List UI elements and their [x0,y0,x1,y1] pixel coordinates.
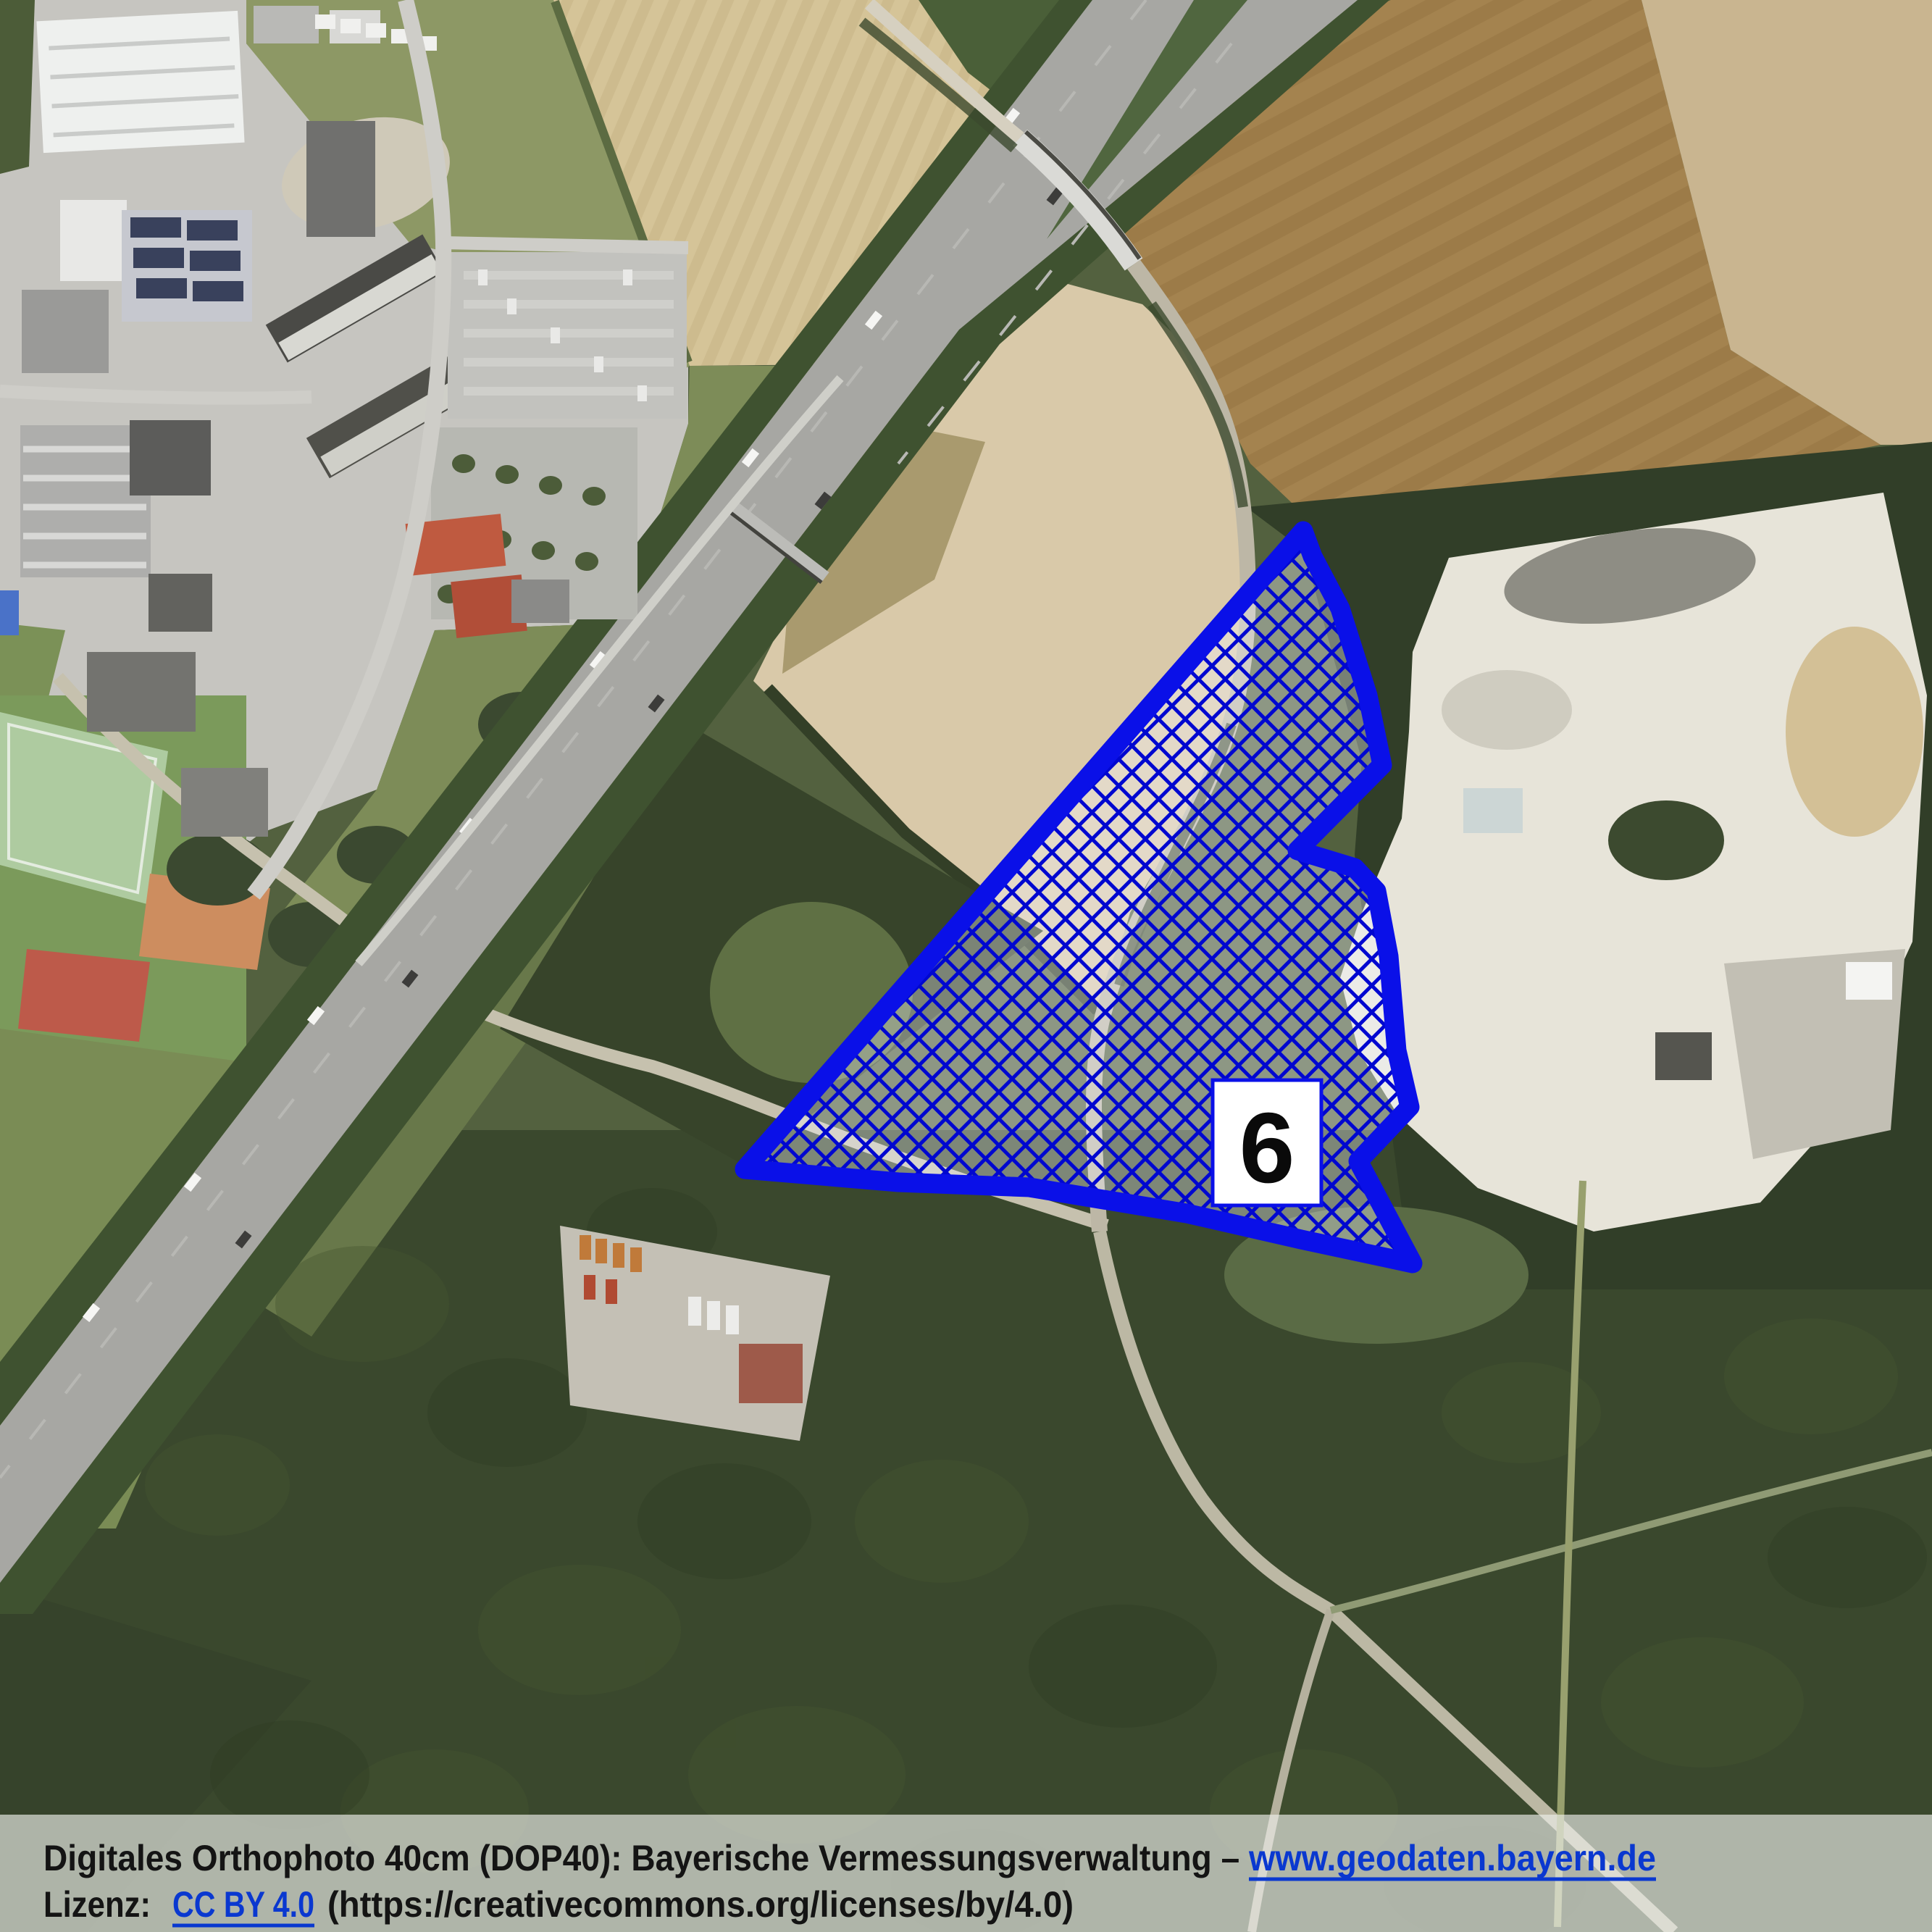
svg-text:(https://creativecommons.org/l: (https://creativecommons.org/licenses/by… [327,1884,1074,1925]
svg-text:Digitales Orthophoto 40cm (DOP: Digitales Orthophoto 40cm (DOP40): Bayer… [43,1838,1249,1878]
svg-text:www.geodaten.bayern.de: www.geodaten.bayern.de [1248,1838,1656,1878]
svg-text:CC BY 4.0: CC BY 4.0 [172,1884,314,1925]
svg-text:Lizenz:: Lizenz: [43,1884,151,1925]
svg-text:6: 6 [1239,1092,1295,1204]
